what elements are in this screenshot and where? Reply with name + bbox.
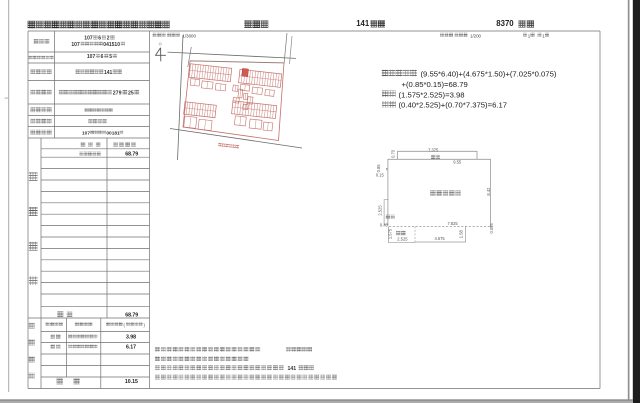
svg-text:0.70: 0.70 bbox=[391, 149, 396, 158]
svg-text:4.675: 4.675 bbox=[434, 236, 445, 241]
svg-text:2.525: 2.525 bbox=[377, 205, 382, 216]
svg-text:9.55: 9.55 bbox=[453, 160, 462, 165]
svg-text:0.85: 0.85 bbox=[376, 164, 381, 173]
svg-text:6.17: 6.17 bbox=[126, 345, 136, 351]
svg-text:(1.575*2.525)=3.98: (1.575*2.525)=3.98 bbox=[399, 90, 465, 99]
svg-text:68.79: 68.79 bbox=[125, 152, 138, 158]
svg-text:141: 141 bbox=[288, 366, 297, 372]
svg-text:5: 5 bbox=[109, 54, 112, 60]
svg-text:68.79: 68.79 bbox=[125, 312, 138, 318]
svg-text:6: 6 bbox=[98, 36, 101, 42]
svg-text:(9.55*6.40)+(4.675*1.50)+(7.02: (9.55*6.40)+(4.675*1.50)+(7.025*0.075) bbox=[421, 69, 557, 78]
svg-text:107: 107 bbox=[71, 42, 80, 48]
svg-text:2.525: 2.525 bbox=[397, 236, 408, 241]
svg-text:10.15: 10.15 bbox=[125, 379, 138, 385]
svg-text:(0.40*2.525)+(0.70*7.375)=6.17: (0.40*2.525)+(0.70*7.375)=6.17 bbox=[399, 101, 508, 110]
svg-text:2: 2 bbox=[107, 36, 110, 42]
svg-text:279: 279 bbox=[113, 90, 122, 96]
svg-text:041510: 041510 bbox=[103, 42, 120, 48]
svg-text:00181: 00181 bbox=[106, 130, 120, 136]
svg-text:6: 6 bbox=[101, 54, 104, 60]
svg-text:1/200: 1/200 bbox=[470, 33, 482, 38]
svg-text:8370: 8370 bbox=[496, 19, 514, 28]
svg-text:0.40: 0.40 bbox=[380, 222, 389, 227]
svg-text:141: 141 bbox=[356, 19, 370, 28]
svg-text:1/3000: 1/3000 bbox=[183, 33, 197, 38]
svg-text:0.075: 0.075 bbox=[489, 223, 494, 234]
svg-text:+(0.85*0.15)=68.79: +(0.85*0.15)=68.79 bbox=[402, 80, 468, 89]
svg-text:0.15: 0.15 bbox=[376, 173, 385, 178]
svg-text:141: 141 bbox=[104, 70, 113, 76]
svg-text:7.375: 7.375 bbox=[428, 148, 439, 153]
svg-text:107: 107 bbox=[87, 54, 96, 60]
svg-text:107: 107 bbox=[84, 36, 93, 42]
svg-text:25: 25 bbox=[128, 90, 134, 96]
svg-text:107: 107 bbox=[82, 130, 90, 136]
svg-text:8.42: 8.42 bbox=[486, 187, 491, 196]
svg-text:3.98: 3.98 bbox=[126, 334, 136, 340]
svg-text:7.825: 7.825 bbox=[447, 221, 458, 226]
svg-text:1.58: 1.58 bbox=[458, 229, 463, 238]
svg-text:1.575: 1.575 bbox=[387, 228, 392, 239]
